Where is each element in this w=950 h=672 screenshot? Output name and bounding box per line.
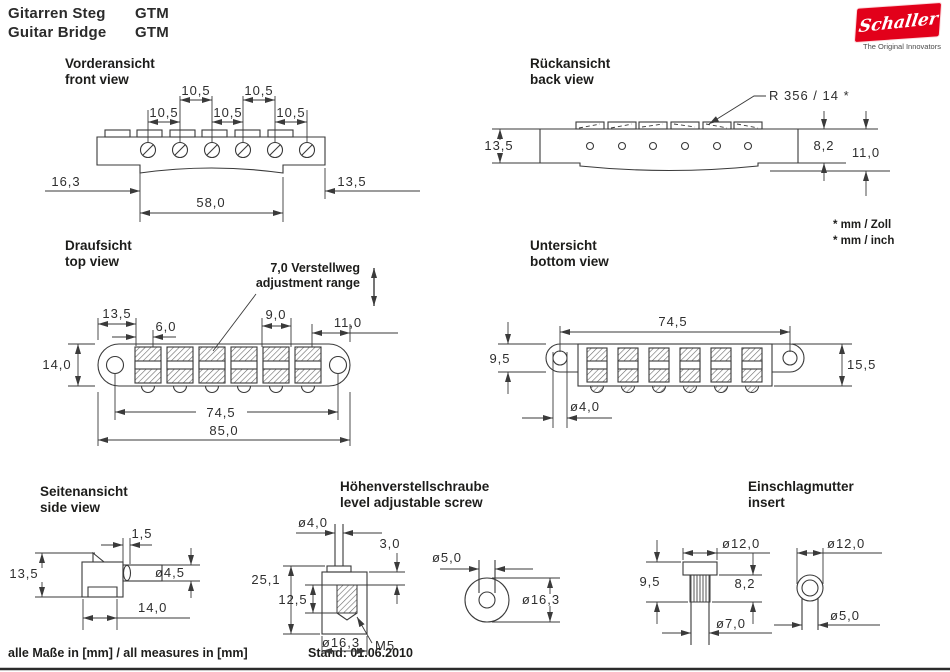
dim-screw-thread-depth: 12,5 — [278, 592, 307, 607]
dim-top-body-width: 14,0 — [42, 357, 71, 372]
dim-screw-thread: M5 — [375, 638, 395, 653]
dim-string-spacing-4: 10,5 — [213, 105, 242, 120]
dim-bottom-lobe-height: 9,5 — [489, 351, 510, 366]
dim-back-step: 8,2 — [813, 138, 834, 153]
dim-insert-top-cap-dia: ø12,0 — [827, 536, 865, 551]
dim-front-span: 58,0 — [196, 195, 225, 210]
dim-string-spacing-2: 10,5 — [244, 83, 273, 98]
bottom-view-drawing: 74,5 9,5 15,5 ø4,0 — [489, 314, 876, 428]
dim-side-pin-dia: ø4,5 — [155, 565, 185, 580]
dim-screw-top-body-dia: ø16,3 — [522, 592, 560, 607]
dim-screw-top-shaft-dia: ø5,0 — [432, 550, 462, 565]
drawing-canvas: 10,5 10,5 10,5 10,5 10,5 16,3 13,5 58,0 — [0, 0, 950, 672]
dim-insert-height: 9,5 — [639, 574, 660, 589]
dim-insert-top-hole-dia: ø5,0 — [830, 608, 860, 623]
bottom-mounting-hole-left — [553, 351, 567, 365]
insert-drawing: ø12,0 9,5 8,2 ø7,0 ø12,0 — [639, 536, 882, 645]
back-view-drawing: R 356 / 14 * 13,5 8,2 11,0 — [484, 88, 890, 196]
back-holes — [587, 143, 752, 150]
dim-insert-shaft-dia: ø7,0 — [716, 616, 746, 631]
dim-bottom-body-height: 15,5 — [847, 357, 876, 372]
dim-back-radius: R 356 / 14 * — [769, 88, 850, 103]
dim-string-spacing-3: 10,5 — [149, 105, 178, 120]
dim-front-right-offset: 13,5 — [337, 174, 366, 189]
dim-string-spacing-5: 10,5 — [276, 105, 305, 120]
dim-top-total-length: 85,0 — [209, 423, 238, 438]
dim-back-total-height: 11,0 — [852, 145, 880, 160]
screw-drawing: ø4,0 3,0 25,1 12,5 ø16,3 M5 — [251, 515, 560, 655]
dim-screw-collar: 3,0 — [379, 536, 400, 551]
dim-top-saddle-width: 6,0 — [155, 319, 176, 334]
dim-top-right-offset: 11,0 — [334, 315, 362, 330]
top-view-drawing: 13,5 6,0 9,0 11,0 14,0 74,5 — [42, 268, 398, 446]
dim-bottom-hole-dia: ø4,0 — [570, 399, 600, 414]
side-view-drawing: 1,5 13,5 ø4,5 14,0 — [9, 526, 200, 630]
dim-insert-knurl-height: 8,2 — [734, 576, 755, 591]
dim-top-saddle-len: 9,0 — [265, 307, 286, 322]
top-mounting-hole-right — [330, 357, 347, 374]
front-saddles — [105, 130, 293, 137]
dim-insert-cap-dia: ø12,0 — [722, 536, 760, 551]
dim-screw-total-height: 25,1 — [251, 572, 280, 587]
dim-top-end-offset: 13,5 — [102, 306, 131, 321]
dim-front-left-offset: 16,3 — [51, 174, 80, 189]
dim-string-spacing-1: 10,5 — [181, 83, 210, 98]
dim-bottom-hole-span: 74,5 — [658, 314, 687, 329]
dim-side-depth: 14,0 — [138, 600, 167, 615]
dim-screw-body-dia: ø16,3 — [322, 635, 360, 650]
dim-top-hole-span: 74,5 — [206, 405, 235, 420]
dim-screw-shaft-dia: ø4,0 — [298, 515, 328, 530]
dim-back-height: 13,5 — [484, 138, 513, 153]
technical-drawing-page: Gitarren Steg GTM Guitar Bridge GTM Scha… — [0, 0, 950, 672]
top-mounting-hole-left — [107, 357, 124, 374]
back-saddles — [576, 122, 762, 129]
bottom-mounting-hole-right — [783, 351, 797, 365]
dim-side-height: 13,5 — [9, 566, 38, 581]
front-screws — [141, 143, 315, 158]
dim-side-pin-offset: 1,5 — [131, 526, 152, 541]
front-view-drawing: 10,5 10,5 10,5 10,5 10,5 16,3 13,5 58,0 — [45, 83, 420, 222]
